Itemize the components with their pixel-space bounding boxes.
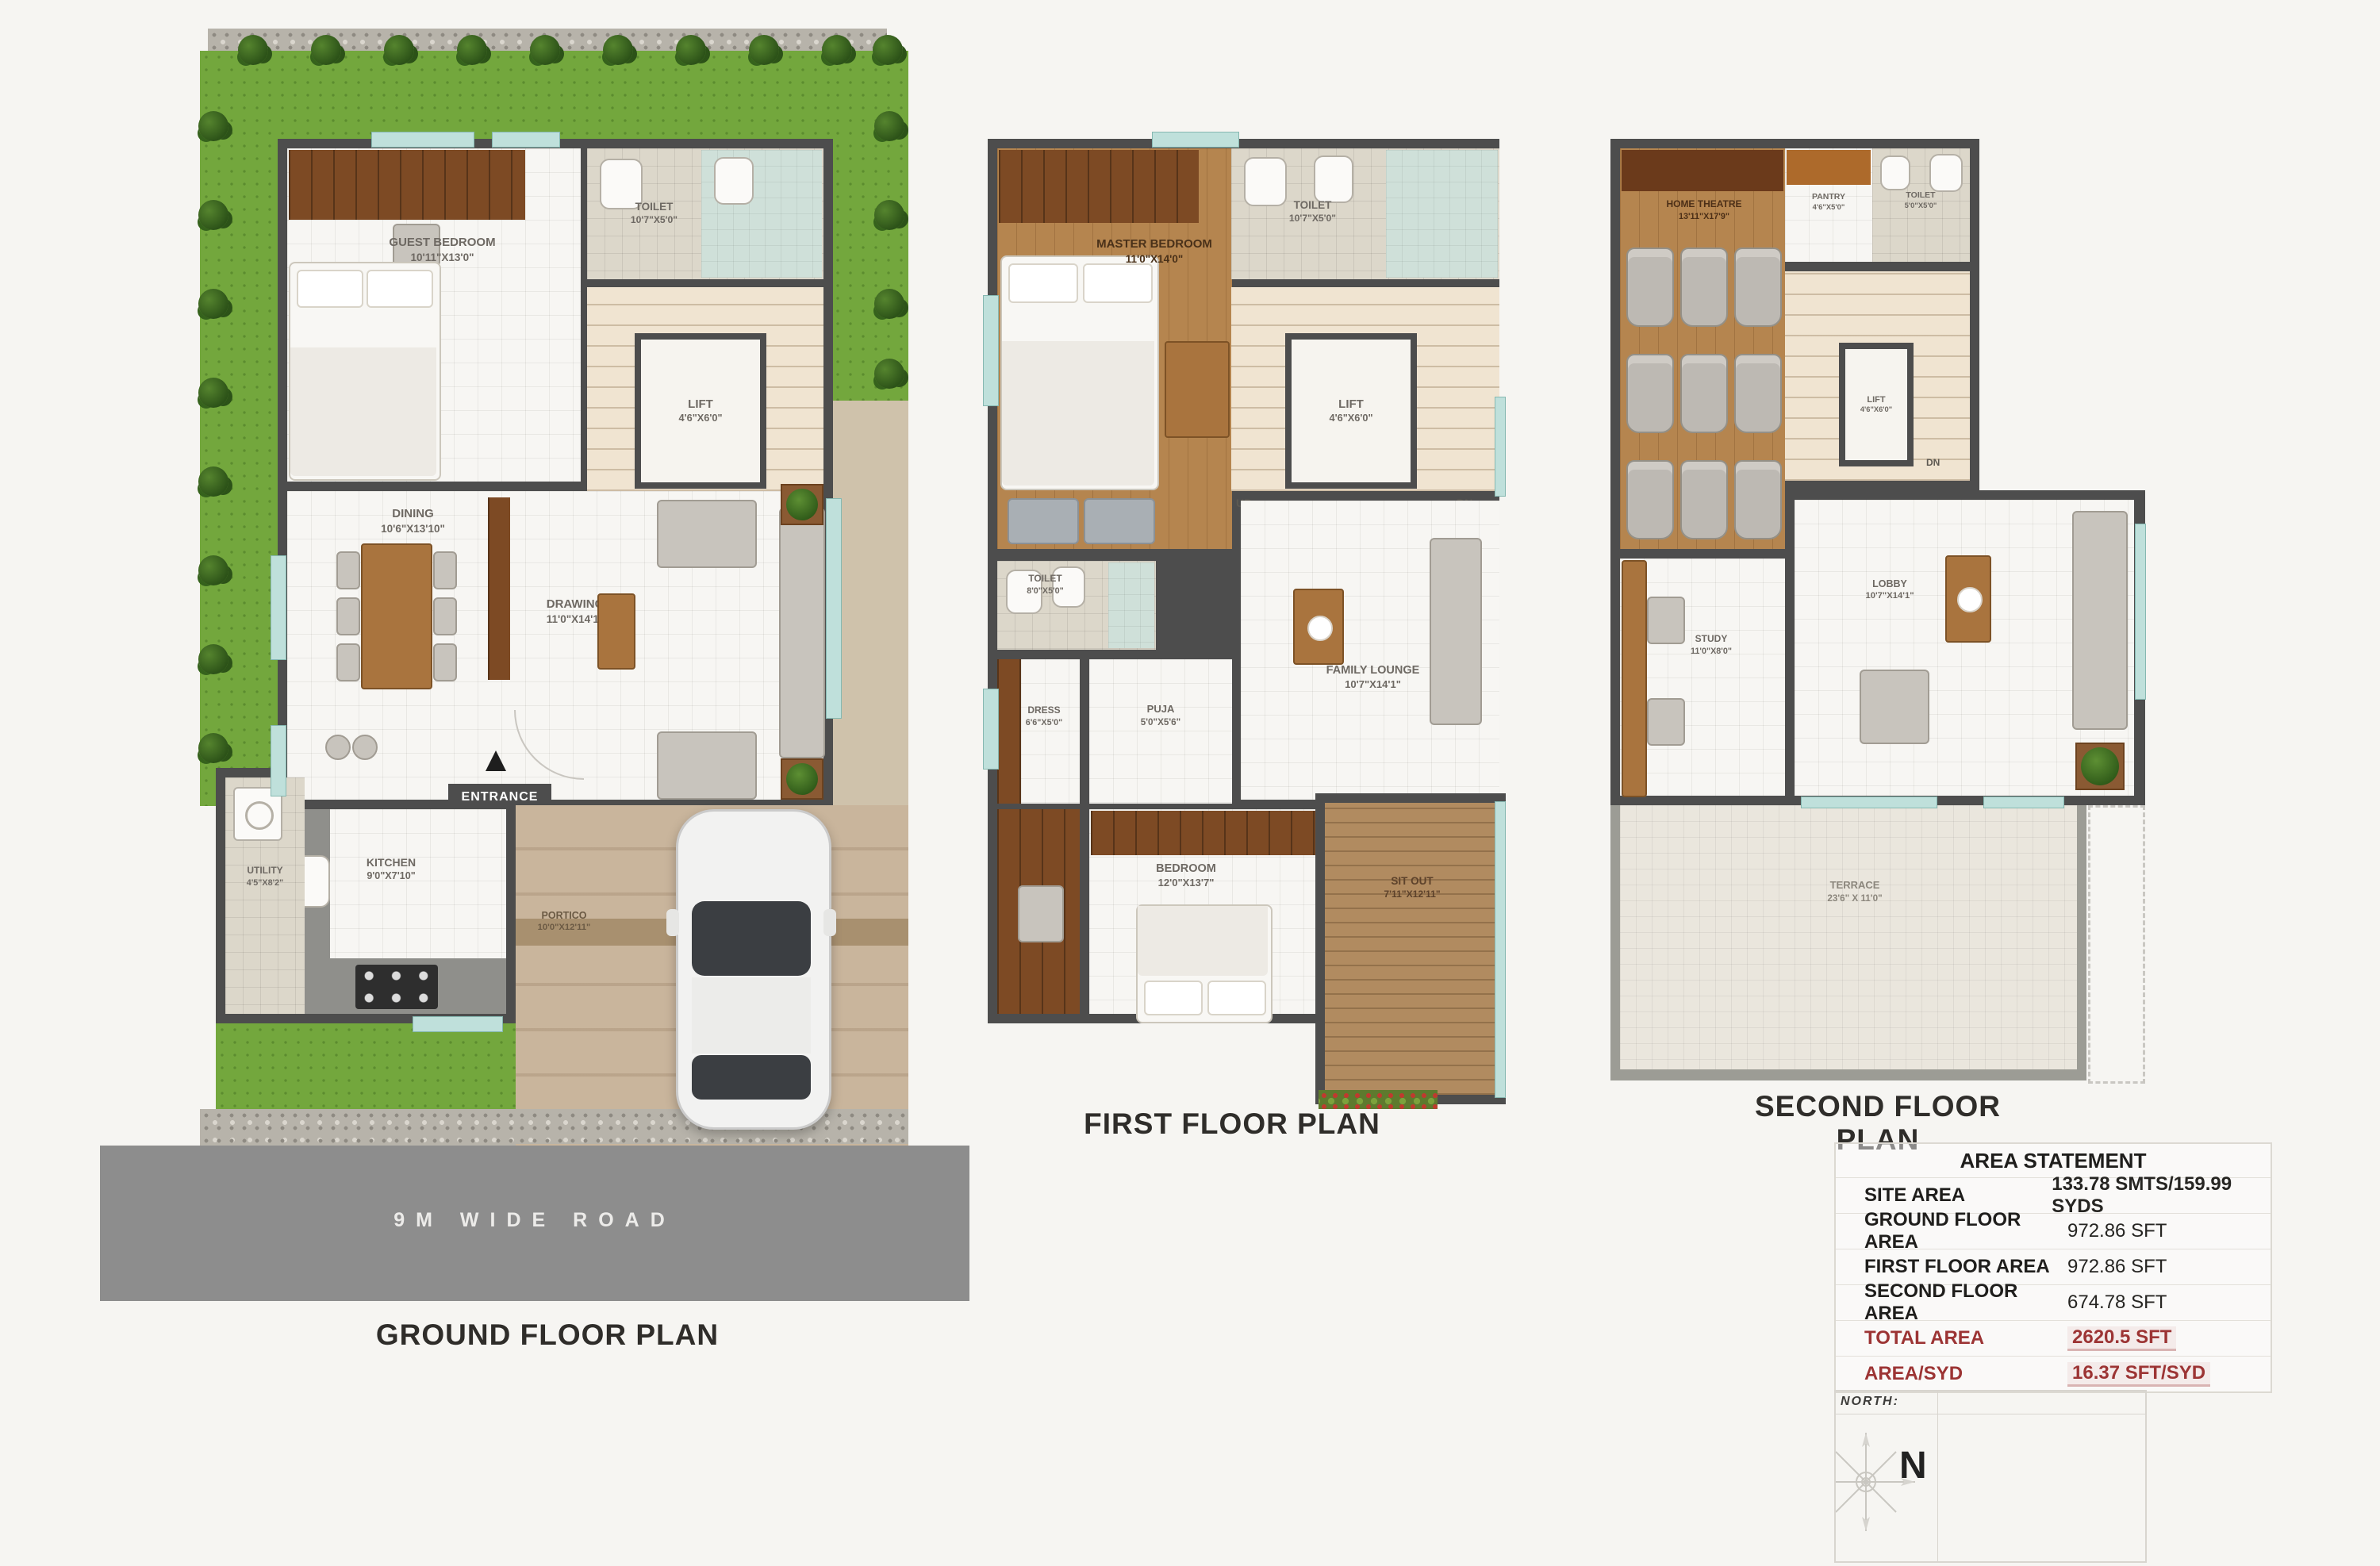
kitchen-label: KITCHEN 9'0"X7'10" [324,855,459,883]
plant-icon [530,35,560,65]
portico-label: PORTICO 10'0"X12'11" [517,909,611,934]
window [492,132,560,148]
chair-icon [1018,885,1064,942]
railing [1495,801,1506,1098]
plant-icon [874,200,904,230]
terrace-wall [2077,805,2086,1080]
lawn-left [200,51,281,806]
wardrobe-icon [999,150,1199,223]
plant-icon [822,35,852,65]
window [371,132,474,148]
plant-icon [603,35,633,65]
bedroom-first-label: BEDROOM 12'0"X13'7" [1115,862,1257,890]
terrace-wall [1610,1069,2086,1080]
lift-box-ground: LIFT4'6"X6'0" [635,333,766,489]
plant-icon [311,35,341,65]
car-icon [676,809,827,1125]
window [413,1016,503,1032]
chair-icon [433,597,457,635]
chair-icon [336,597,360,635]
puja-label: PUJA 5'0"X5'6" [1109,703,1212,728]
room-sit-out [1325,803,1496,1095]
blanket-icon [290,347,436,476]
divider [1836,1414,2145,1414]
theatre-screen-icon [1622,150,1783,191]
window [271,725,286,796]
blanket-icon [1002,341,1154,486]
armchair-icon [1860,670,1929,744]
plant-icon [198,111,228,141]
window [983,295,999,406]
partition-console-icon [488,497,510,680]
table-row: TOTAL AREA 2620.5 SFT [1836,1320,2271,1356]
plant-icon [873,35,903,65]
recliner-icon [1626,354,1674,433]
pantry-label: PANTRY 4'6"X5'0" [1787,192,1871,213]
sit-out-label: SIT OUT 7'11"X12'11" [1342,874,1482,900]
plan-title-first: FIRST FLOOR PLAN [1073,1107,1391,1141]
driveway-strip [831,401,908,807]
flower-bed-icon [1319,1090,1438,1109]
armchair-icon [657,731,757,800]
master-bedroom-label: MASTER BEDROOM 11'0"X14'0" [1055,236,1253,266]
utility-label: UTILITY 4'5"X8'2" [227,865,303,889]
blanket-icon [1138,906,1268,976]
plant-icon [198,466,228,497]
wardrobe-icon [289,150,525,220]
lounger-mat-icon [1008,498,1079,544]
chair-icon [433,551,457,589]
wardrobe-icon [1091,811,1315,855]
chair-icon [336,551,360,589]
recliner-icon [1626,248,1674,327]
plant-icon [198,555,228,585]
study-label: STUDY 11'0"X8'0" [1660,633,1763,657]
pebble-border-bottom [200,1109,517,1146]
window [1495,397,1506,497]
plant-icon [198,644,228,674]
pillow-icon [297,270,363,308]
terrace-label: TERRACE 23'6" X 11'0" [1775,879,1934,904]
window [983,689,999,770]
armchair-icon [657,500,757,568]
dn-label-second: DN [1926,457,1940,468]
plant-icon [874,359,904,389]
area-statement-table: AREA STATEMENT SITE AREA 133.78 SMTS/159… [1834,1142,2272,1393]
window [1983,796,2064,808]
table-row: AREA/SYD 16.37 SFT/SYD [1836,1356,2271,1391]
coffee-table-icon [597,593,635,670]
plant-icon [457,35,487,65]
chair-icon [1647,698,1685,746]
recliner-icon [1680,248,1728,327]
road-label: 9M WIDE ROAD [100,1209,969,1232]
plant-icon [238,35,268,65]
shower-area [1386,150,1498,278]
potted-plant-icon [781,758,823,800]
plant-icon [198,200,228,230]
window [1152,132,1239,148]
dining-label: DINING 10'6"X13'10" [347,506,478,535]
lobby-label: LOBBY 10'7"X14'1" [1826,578,1953,602]
sofa-icon [779,508,825,758]
plan-title-ground: GROUND FLOOR PLAN [317,1318,777,1352]
stool-icon [352,735,378,760]
sofa-icon [2072,511,2128,730]
plant-icon [198,733,228,763]
window [1801,796,1937,808]
lounger-mat-icon [1084,498,1155,544]
dining-table-icon [361,543,432,689]
lift-box-first: LIFT4'6"X6'0" [1285,333,1417,489]
area-statement-title: AREA STATEMENT [1836,1144,2271,1177]
plant-icon [676,35,706,65]
pillow-icon [1008,263,1078,303]
bed-icon [1136,904,1273,1023]
pillow-icon [1207,981,1266,1015]
room-terrace [1620,805,2077,1069]
window [271,555,286,660]
family-lounge-label: FAMILY LOUNGE 10'7"X14'1" [1299,663,1446,692]
stove-icon [355,965,438,1009]
pillow-icon [1144,981,1203,1015]
side-desk-icon [1165,341,1230,438]
coffee-table-icon [1293,589,1344,665]
room-puja [1089,659,1232,804]
divider [1937,1391,1938,1561]
study-desk-icon [1622,560,1647,797]
entrance-arrow-icon [486,750,506,771]
window [2135,524,2146,700]
potted-plant-icon [781,484,823,525]
terrace-wall [1610,805,1620,1080]
pillow-icon [1083,263,1153,303]
recliner-icon [1734,248,1782,327]
washbasin-icon [1880,155,1910,190]
north-indicator-box: NORTH: N [1834,1390,2147,1563]
table-row: FIRST FLOOR AREA 972.86 SFT [1836,1249,2271,1284]
dress-label: DRESS 6'6"X5'0" [1009,704,1079,728]
toilet-ground-label: TOILET 10'7"X5'0" [589,200,720,226]
toilet-first-top-label: TOILET 10'7"X5'0" [1247,198,1378,225]
shower-area [1108,562,1154,648]
guest-bedroom-label: GUEST BEDROOM 10'11"X13'0" [349,235,535,264]
wc-icon [714,157,754,205]
wc-icon [1314,155,1353,203]
bed-icon [289,262,441,481]
plant-icon [198,289,228,319]
setback-dashed-outline [2088,805,2145,1084]
home-theatre-label: HOME THEATRE 13'11"X17'9" [1641,198,1768,222]
potted-plant-icon [2075,743,2125,790]
plant-icon [749,35,779,65]
recliner-icon [1680,460,1728,539]
north-n-letter: N [1899,1444,1927,1487]
table-row: SITE AREA 133.78 SMTS/159.99 SYDS [1836,1177,2271,1213]
toilet-first-mid-label: TOILET 8'0"X5'0" [1000,573,1091,597]
pillow-icon [367,270,433,308]
plant-icon [874,111,904,141]
lift-box-second: LIFT4'6"X6'0" [1839,343,1914,466]
wc-icon [1929,154,1963,192]
sofa-icon [1430,538,1482,725]
toilet-second-label: TOILET 5'0"X5'0" [1874,190,1967,211]
bed-icon [1000,255,1159,490]
north-label: NORTH: [1841,1395,1899,1409]
table-row: GROUND FLOOR AREA 972.86 SFT [1836,1213,2271,1249]
table-row: SECOND FLOOR AREA 674.78 SFT [1836,1284,2271,1320]
recliner-icon [1680,354,1728,433]
chair-icon [336,643,360,681]
lawn-top [200,51,908,143]
wardrobe-icon [997,659,1021,804]
recliner-icon [1734,354,1782,433]
window [826,498,842,719]
pantry-counter [1787,150,1871,185]
recliner-icon [1626,460,1674,539]
floorplan-sheet: GUEST BEDROOM 10'11"X13'0" TOILET 10'7"X… [0,0,2380,1566]
recliner-icon [1734,460,1782,539]
plant-icon [874,289,904,319]
plant-icon [198,378,228,408]
plant-icon [384,35,414,65]
chair-icon [433,643,457,681]
stool-icon [325,735,351,760]
